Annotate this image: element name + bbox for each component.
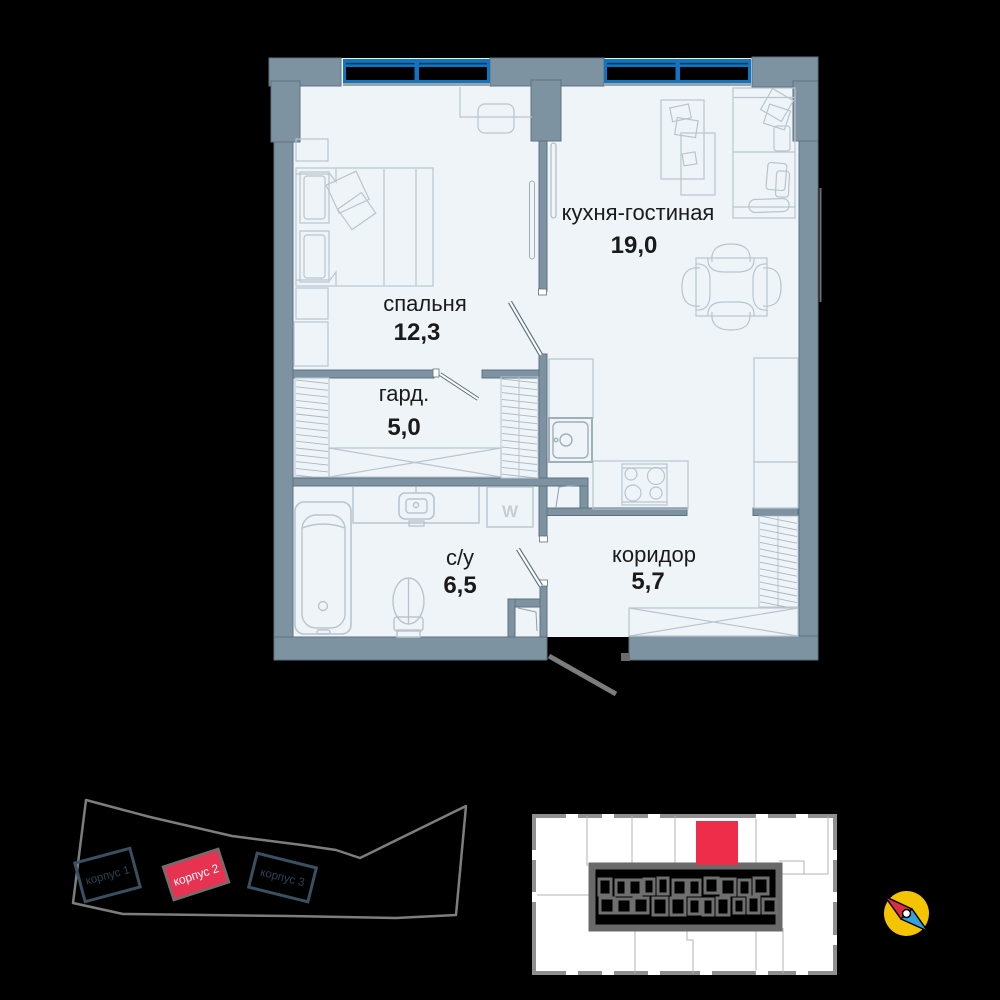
- svg-text:спальня: спальня: [383, 291, 467, 316]
- svg-text:12,3: 12,3: [394, 319, 441, 346]
- svg-text:5,7: 5,7: [631, 568, 664, 595]
- svg-text:с/у: с/у: [446, 545, 474, 570]
- svg-text:6,5: 6,5: [443, 572, 476, 599]
- svg-text:гард.: гард.: [379, 381, 429, 406]
- svg-text:5,0: 5,0: [387, 414, 420, 441]
- svg-text:W: W: [502, 502, 519, 521]
- svg-text:19,0: 19,0: [611, 232, 658, 259]
- svg-text:кухня-гостиная: кухня-гостиная: [562, 200, 715, 225]
- svg-text:коридор: коридор: [612, 542, 696, 567]
